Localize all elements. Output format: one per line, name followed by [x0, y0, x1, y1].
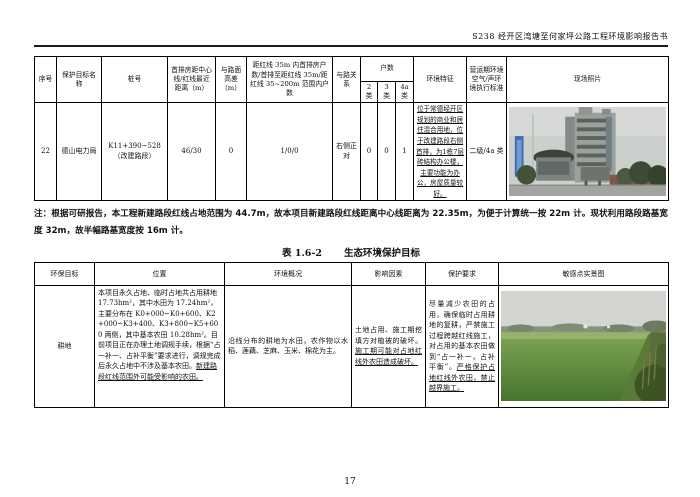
eco-protection-table: 环保目标 位置 环境概况 影响因素 保护要求 敏感点实景图 耕地 本项目永久占地… — [34, 262, 669, 408]
cell-stake: K11+390~528（改建路段） — [102, 103, 168, 201]
eco-cell-protection: 尽量减少农田的占用，确保临时占用耕地的复耕，严禁施工过程跨越红线施工，对占用的基… — [426, 285, 499, 407]
col-header-height-diff: 与路面高差（m） — [216, 57, 247, 103]
eco-table-caption-label: 表 1.6-2 — [282, 248, 322, 259]
cell-distance: 46/30 — [168, 103, 216, 201]
col-header-env-feature: 环境特征 — [414, 57, 467, 103]
col-header-photo: 现场照片 — [507, 57, 669, 103]
impact-text: 土地占用、施工期挖填方对植被的破坏。 — [355, 326, 422, 345]
eco-col-impact: 影响因素 — [352, 262, 426, 285]
cell-env-feature: 位于常德经开区规划的商业和居住混合用地，位于改建路段右侧首排，为1栋7层砖结构办… — [414, 103, 467, 201]
noise-protection-table: 序号 保护目标名称 桩号 首排房距中心线/红线最近距离（m） 与路面高差（m） … — [34, 56, 669, 201]
running-header: S238 经开区湾塘至何家坪公路工程环境影响报告书 — [34, 0, 668, 47]
eco-col-photo: 敏感点实景图 — [499, 262, 669, 285]
eco-cell-overview: 沿线分布的耕地为水田，农作物以水稻、莲藕、芝麻、玉米、棉花为主。 — [225, 285, 352, 407]
eco-col-overview: 环境概况 — [225, 262, 352, 285]
office-building-photo — [509, 107, 666, 196]
table-note: 注：根据可研报告，本工程新建路段红线占地范围为 44.7m，故本项目新建路段红线… — [34, 206, 668, 240]
eco-cell-impact: 土地占用、施工期挖填方对植被的破坏。施工期可能对占地红线外农田造成破坏。 — [352, 285, 426, 407]
impact-underlined-text: 施工期可能对占地红线外农田造成破坏。 — [355, 347, 422, 366]
document-title: S238 经开区湾塘至何家坪公路工程环境影响报告书 — [472, 32, 668, 41]
cell-name: 德山电力局 — [57, 103, 102, 201]
eco-header-row: 环保目标 位置 环境概况 影响因素 保护要求 敏感点实景图 — [35, 262, 669, 285]
cell-height-diff: 0 — [216, 103, 247, 201]
eco-cell-photo — [499, 285, 669, 407]
page-content: S238 经开区湾塘至何家坪公路工程环境影响报告书 序号 保护目标名称 桩号 首… — [34, 0, 668, 408]
cell-standard: 二级/4a 类 — [467, 103, 507, 201]
col-header-households-group: 户数 — [361, 57, 414, 82]
overview-text: 沿线分布的耕地为水田，农作物以水稻、莲藕、芝麻、玉米、棉花为主。 — [228, 337, 348, 356]
rice-paddy-photo — [501, 291, 666, 401]
eco-cell-target: 耕地 — [35, 285, 95, 407]
table-header-row: 序号 保护目标名称 桩号 首排房距中心线/红线最近距离（m） 与路面高差（m） … — [35, 57, 669, 82]
eco-cell-location: 本项目永久占地、临时占地共占用耕地 17.73hm²，其中水田为 17.24hm… — [95, 285, 225, 407]
col-header-class2: 2 类 — [361, 82, 378, 103]
col-header-name: 保护目标名称 — [57, 57, 102, 103]
col-header-class4a: 4a 类 — [396, 82, 414, 103]
cell-class2: 0 — [361, 103, 378, 201]
cell-road-relation: 右侧正对 — [333, 103, 361, 201]
cell-households: 1/0/0 — [247, 103, 333, 201]
location-text: 本项目永久占地、临时占地共占用耕地 17.73hm²，其中水田为 17.24hm… — [98, 289, 221, 371]
col-header-standard: 营运期环境空气/声环境执行标准 — [467, 57, 507, 103]
col-header-stake: 桩号 — [102, 57, 168, 103]
page-number: 17 — [0, 477, 700, 487]
col-header-no: 序号 — [35, 57, 57, 103]
eco-table-caption-text: 生态环境保护目标 — [344, 248, 420, 259]
env-feature-text: 位于常德经开区规划的商业和居住混合用地，位于改建路段右侧首排，为1栋7层砖结构办… — [416, 105, 464, 197]
col-header-road-relation: 与路关系 — [333, 57, 361, 103]
eco-col-target: 环保目标 — [35, 262, 95, 285]
cell-no: 22 — [35, 103, 57, 201]
cell-class3: 0 — [378, 103, 396, 201]
eco-table-caption: 表 1.6-2生态环境保护目标 — [34, 245, 668, 259]
cell-site-photo — [507, 103, 669, 201]
table-row: 22 德山电力局 K11+390~528（改建路段） 46/30 0 1/0/0… — [35, 103, 669, 201]
cell-class4a: 1 — [396, 103, 414, 201]
col-header-distance: 首排房距中心线/红线最近距离（m） — [168, 57, 216, 103]
eco-data-row: 耕地 本项目永久占地、临时占地共占用耕地 17.73hm²，其中水田为 17.2… — [35, 285, 669, 407]
eco-col-protection: 保护要求 — [426, 262, 499, 285]
report-page: S238 经开区湾塘至何家坪公路工程环境影响报告书 序号 保护目标名称 桩号 首… — [0, 0, 700, 497]
col-header-households-range: 距红线 35m 内首排房户数/首排至距红线 35m/距红线 35~200m 范围… — [247, 57, 333, 103]
eco-col-location: 位置 — [95, 262, 225, 285]
col-header-class3: 3 类 — [378, 82, 396, 103]
protection-text: 尽量减少农田的占用，确保临时占用耕地的复耕，严禁施工过程跨越红线施工，对占用的基… — [429, 300, 495, 371]
